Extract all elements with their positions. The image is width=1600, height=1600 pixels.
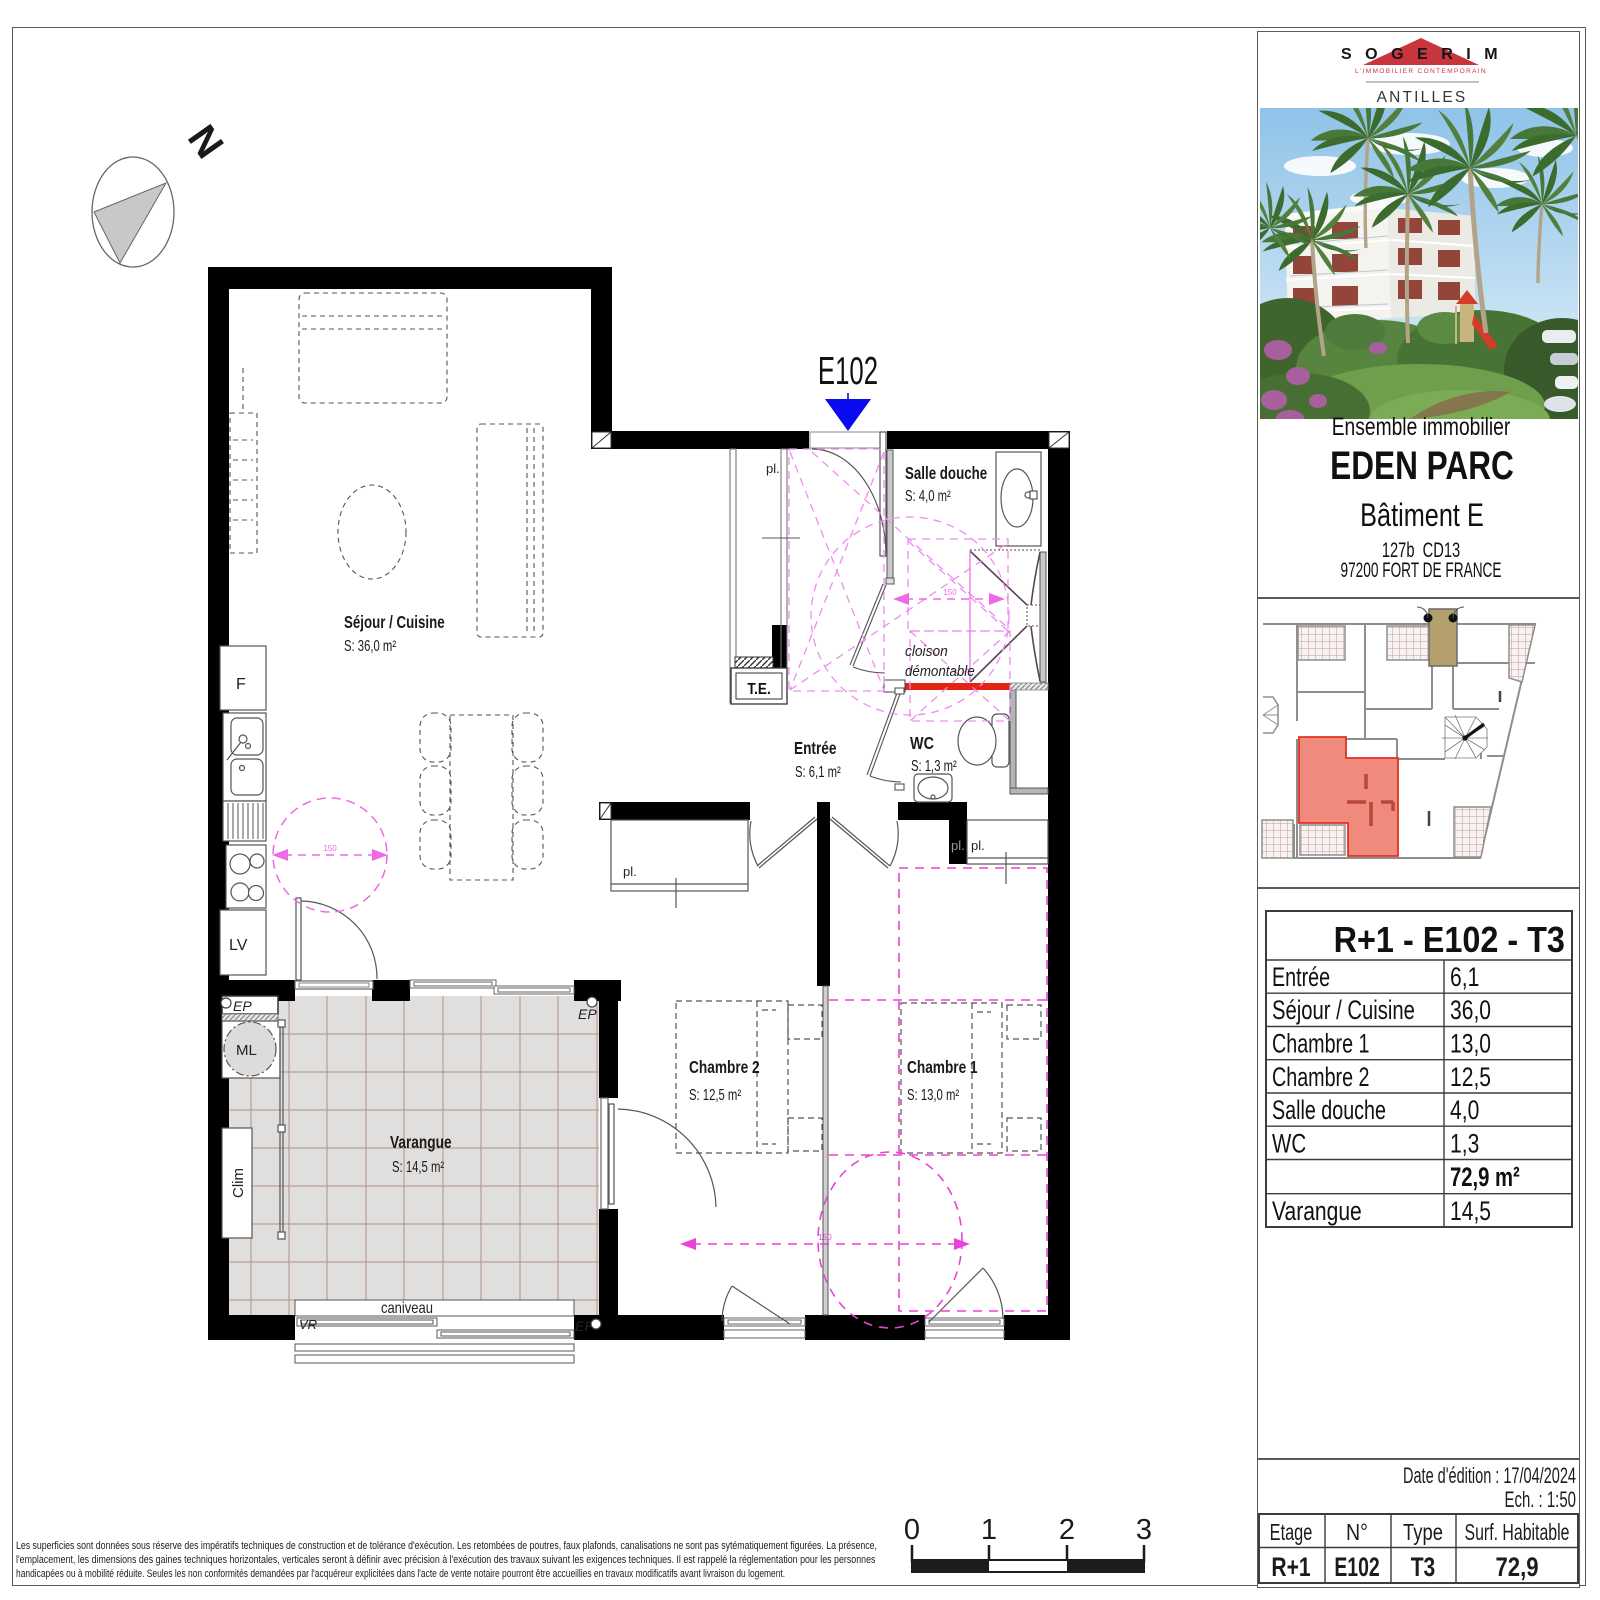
svg-text:N: N	[179, 117, 232, 166]
svg-text:handicapées ou à mobilité rédu: handicapées ou à mobilité réduite. Seule…	[16, 1568, 785, 1580]
svg-text:ML: ML	[236, 1042, 257, 1059]
svg-text:S: 13,0 m²: S: 13,0 m²	[907, 1086, 960, 1103]
svg-text:VR: VR	[299, 1317, 317, 1332]
svg-text:Salle douche: Salle douche	[905, 464, 987, 483]
svg-text:l'emplacement, les dimensions: l'emplacement, les dimensions des gaines…	[16, 1554, 875, 1566]
svg-text:LV: LV	[229, 937, 248, 954]
svg-text:E102: E102	[818, 350, 878, 394]
svg-text:R+1 - E102 - T3: R+1 - E102 - T3	[1334, 920, 1565, 960]
svg-text:Chambre 1: Chambre 1	[1272, 1030, 1369, 1060]
svg-text:Les superficies sont données s: Les superficies sont données sous réserv…	[16, 1540, 877, 1552]
svg-text:démontable: démontable	[905, 662, 975, 679]
svg-text:72,9 m²: 72,9 m²	[1450, 1162, 1520, 1193]
svg-text:WC: WC	[1272, 1129, 1306, 1159]
svg-text:2: 2	[1059, 1514, 1075, 1546]
svg-text:Chambre 1: Chambre 1	[907, 1058, 978, 1077]
svg-text:Séjour / Cuisine: Séjour / Cuisine	[1272, 995, 1415, 1026]
svg-text:F: F	[236, 676, 246, 693]
svg-text:Etage: Etage	[1270, 1520, 1313, 1545]
svg-text:pl.: pl.	[623, 864, 637, 879]
svg-text:0: 0	[904, 1514, 920, 1546]
svg-text:1: 1	[981, 1514, 997, 1546]
svg-text:72,9: 72,9	[1495, 1553, 1538, 1583]
svg-text:150: 150	[943, 588, 957, 597]
svg-text:EDEN PARC: EDEN PARC	[1330, 442, 1514, 487]
svg-text:Chambre 2: Chambre 2	[689, 1058, 760, 1077]
svg-text:SOGERIM: SOGERIM	[1341, 46, 1511, 63]
svg-text:Varangue: Varangue	[390, 1133, 452, 1152]
svg-text:cloison: cloison	[905, 643, 948, 659]
svg-text:Bâtiment E: Bâtiment E	[1360, 498, 1484, 534]
svg-text:Clim: Clim	[230, 1168, 247, 1198]
svg-text:WC: WC	[910, 734, 934, 754]
svg-text:caniveau: caniveau	[381, 1300, 433, 1317]
svg-text:150: 150	[818, 1233, 832, 1242]
svg-text:150: 150	[323, 844, 337, 853]
svg-text:R+1: R+1	[1271, 1553, 1310, 1583]
svg-text:13,0: 13,0	[1450, 1029, 1491, 1059]
svg-text:S: 36,0 m²: S: 36,0 m²	[344, 637, 397, 654]
svg-text:S: 4,0 m²: S: 4,0 m²	[905, 487, 951, 504]
svg-text:Entrée: Entrée	[794, 739, 837, 758]
svg-text:Chambre 2: Chambre 2	[1272, 1063, 1369, 1093]
svg-text:ANTILLES: ANTILLES	[1377, 89, 1468, 106]
svg-text:S: 6,1 m²: S: 6,1 m²	[795, 763, 841, 780]
svg-text:Ensemble immobilier: Ensemble immobilier	[1332, 413, 1511, 441]
svg-text:pl.: pl.	[971, 838, 985, 853]
svg-text:pl.: pl.	[766, 461, 780, 476]
svg-text:Ech. : 1:50: Ech. : 1:50	[1504, 1487, 1575, 1512]
svg-text:N°: N°	[1346, 1520, 1368, 1546]
svg-text:EP: EP	[233, 998, 252, 1014]
svg-text:Varangue: Varangue	[1272, 1197, 1362, 1227]
svg-text:Salle douche: Salle douche	[1272, 1096, 1386, 1126]
svg-text:1,3: 1,3	[1450, 1129, 1479, 1159]
svg-text:Surf. Habitable: Surf. Habitable	[1465, 1520, 1570, 1546]
svg-text:14,5: 14,5	[1450, 1197, 1491, 1227]
svg-text:4,0: 4,0	[1450, 1096, 1479, 1126]
svg-text:12,5: 12,5	[1450, 1063, 1491, 1093]
svg-text:Entrée: Entrée	[1272, 963, 1330, 993]
svg-text:EP: EP	[578, 1006, 597, 1022]
svg-text:T3: T3	[1411, 1553, 1436, 1583]
svg-text:pl.: pl.	[951, 838, 965, 853]
svg-text:97200 FORT DE FRANCE: 97200 FORT DE FRANCE	[1341, 558, 1502, 582]
svg-text:T.E.: T.E.	[747, 681, 770, 698]
svg-text:3: 3	[1136, 1514, 1152, 1546]
svg-text:Type: Type	[1403, 1520, 1443, 1545]
svg-text:E102: E102	[1334, 1552, 1379, 1582]
svg-text:S: 14,5 m²: S: 14,5 m²	[392, 1158, 445, 1175]
svg-text:Séjour / Cuisine: Séjour / Cuisine	[344, 613, 445, 632]
svg-text:36,0: 36,0	[1450, 996, 1491, 1026]
svg-text:S: 1,3 m²: S: 1,3 m²	[911, 757, 957, 774]
svg-text:6,1: 6,1	[1450, 963, 1479, 993]
svg-text:L'IMMOBILIER CONTEMPORAIN: L'IMMOBILIER CONTEMPORAIN	[1355, 68, 1487, 75]
svg-text:S: 12,5 m²: S: 12,5 m²	[689, 1086, 742, 1103]
svg-text:Date d'édition : 17/04/2024: Date d'édition : 17/04/2024	[1403, 1463, 1576, 1488]
